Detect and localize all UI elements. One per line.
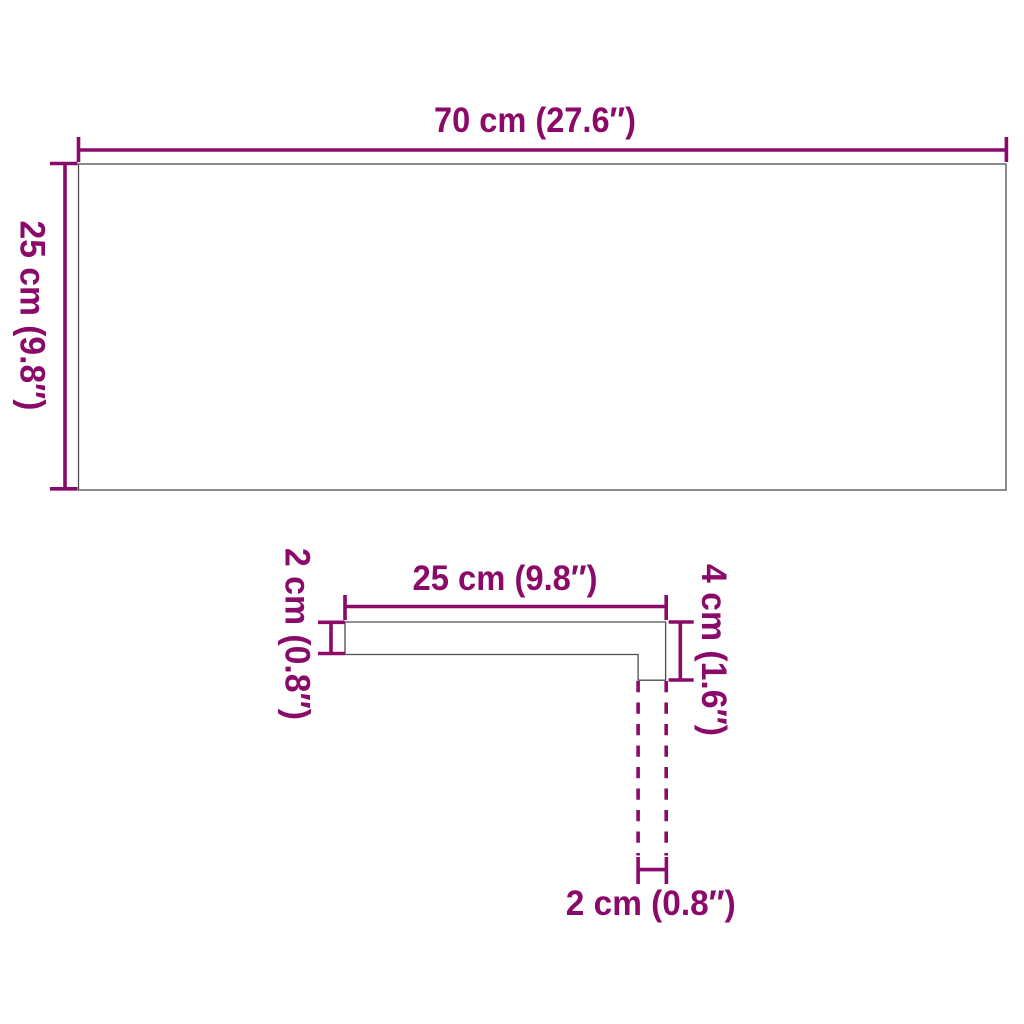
- svg-text:25 cm (9.8″): 25 cm (9.8″): [13, 220, 53, 410]
- svg-text:2 cm (0.8″): 2 cm (0.8″): [278, 548, 318, 720]
- svg-text:25 cm (9.8″): 25 cm (9.8″): [413, 558, 598, 598]
- svg-text:70 cm (27.6″): 70 cm (27.6″): [434, 100, 636, 140]
- svg-text:2 cm (0.8″): 2 cm (0.8″): [566, 883, 736, 923]
- svg-text:4 cm (1.6″): 4 cm (1.6″): [694, 564, 734, 736]
